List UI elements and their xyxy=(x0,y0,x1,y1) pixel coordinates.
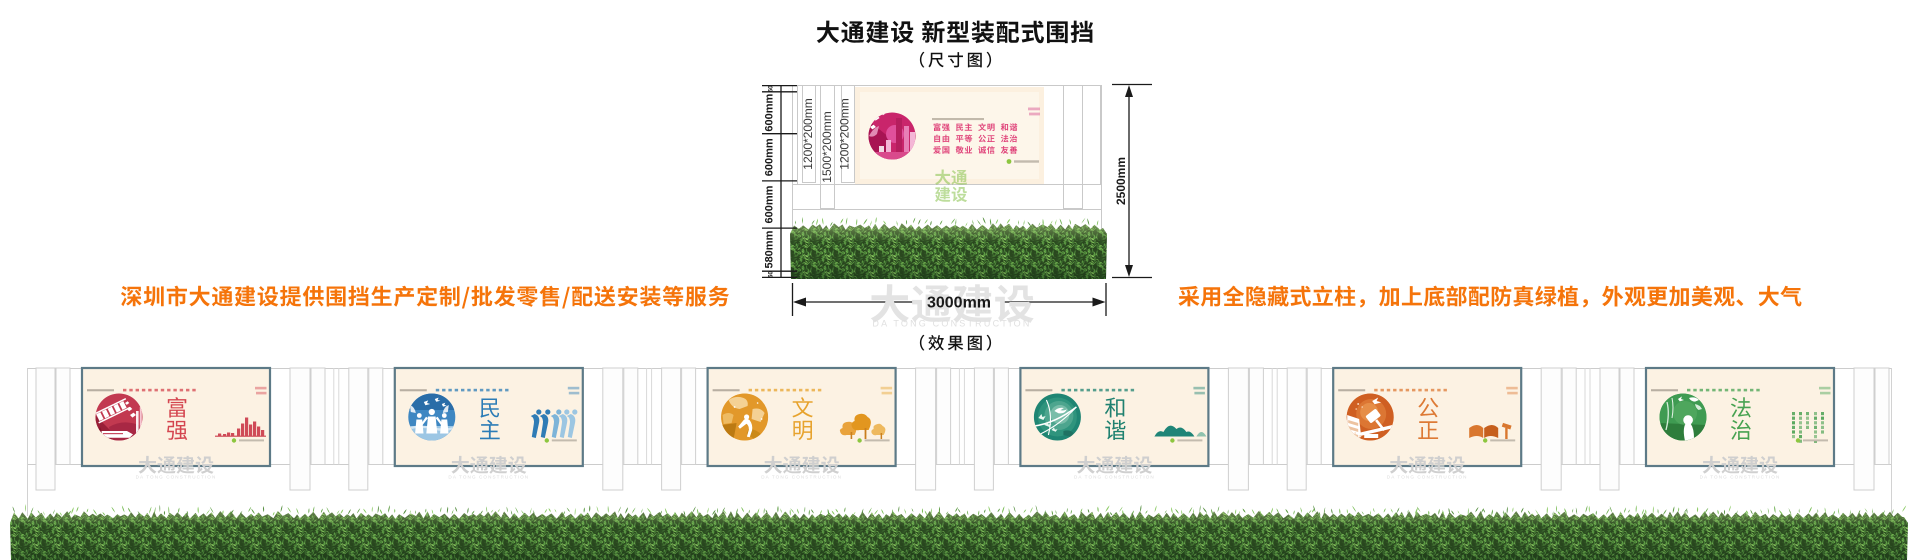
svg-text:60: 60 xyxy=(769,271,775,278)
svg-text:3000mm: 3000mm xyxy=(927,295,991,312)
svg-text:1200*200mm: 1200*200mm xyxy=(838,98,852,169)
svg-text:580mm: 580mm xyxy=(764,230,776,268)
svg-text:600mm: 600mm xyxy=(764,94,776,132)
svg-text:1200*200mm: 1200*200mm xyxy=(801,98,815,169)
svg-text:600mm: 600mm xyxy=(764,138,776,176)
svg-text:DA TONG CONSTRUCTION: DA TONG CONSTRUCTION xyxy=(872,319,1031,329)
svg-text:600mm: 600mm xyxy=(764,185,776,223)
svg-text:60: 60 xyxy=(769,85,775,92)
svg-text:2500mm: 2500mm xyxy=(1114,157,1128,205)
svg-text:1500*200mm: 1500*200mm xyxy=(820,111,834,182)
